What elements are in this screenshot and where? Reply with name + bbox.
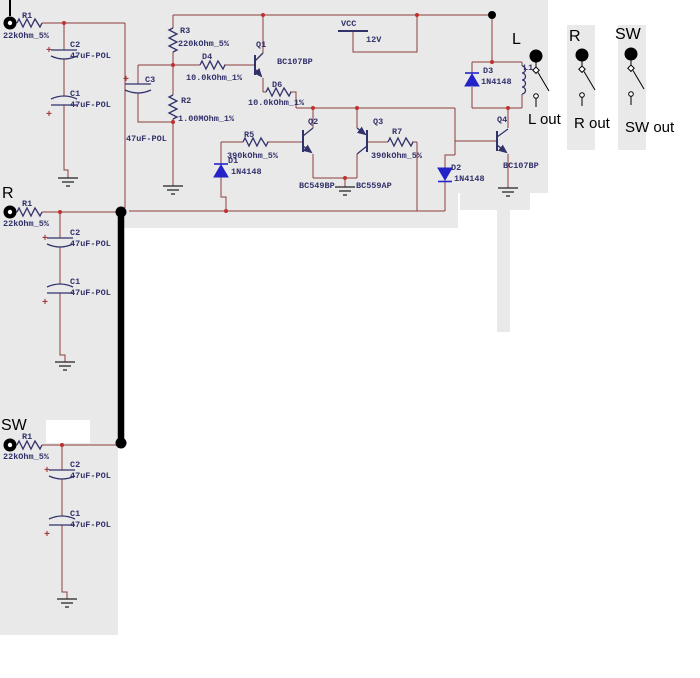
label-c1-r-ref: C1 [70, 277, 80, 287]
label-q2-val: BC549BP [299, 181, 335, 191]
label-c1-l-val: 47uF-POL [70, 100, 111, 110]
label-c1-l-ref: C1 [70, 89, 80, 99]
label-l1-ref: L1 [523, 63, 533, 73]
label-r5-ref: R5 [244, 130, 254, 140]
label-d4-ref: D4 [202, 52, 212, 62]
label-q4-ref: Q4 [497, 115, 507, 125]
plus-c1-l: + [46, 110, 52, 121]
label-c2-sw-ref: C2 [70, 460, 80, 470]
label-r3-val: 220kOhm_5% [178, 39, 230, 49]
label-d6-val: 10.0kOhm_1% [248, 98, 305, 108]
input-terminal-r[interactable] [4, 206, 17, 219]
label-c3-ref: C3 [145, 75, 155, 85]
section-label-r: R [2, 185, 14, 202]
switch-label-sw: SW [615, 26, 642, 43]
section-label-sw: SW [1, 417, 28, 434]
plus-c2-l: + [46, 46, 52, 57]
label-d6-ref: D6 [272, 80, 282, 90]
label-r7-val: 390kOhm_5% [371, 151, 423, 161]
label-r2-ref: R2 [181, 96, 191, 106]
switch-r-terminal[interactable] [576, 49, 588, 61]
plus-c1-r: + [42, 298, 48, 309]
label-r3-ref: R3 [180, 26, 190, 36]
switch-label-r: R [569, 28, 581, 45]
label-c2-r-ref: C2 [70, 228, 80, 238]
label-r1-r-val: 22kOhm_5% [3, 219, 50, 229]
canvas-background [0, 0, 646, 635]
label-d4-val: 10.0kOhm_1% [186, 73, 243, 83]
label-c1-sw-val: 47uF-POL [70, 520, 111, 530]
whiteout-patch [46, 420, 90, 443]
plus-c3: + [123, 75, 129, 86]
switch-sw-terminal[interactable] [625, 48, 637, 60]
rail-annotation-dot [488, 11, 496, 19]
label-r2-val: 1.00MOhm_1% [178, 114, 235, 124]
label-c1-sw-ref: C1 [70, 509, 80, 519]
label-vcc: VCC [341, 19, 356, 29]
label-d3-val: 1N4148 [481, 77, 512, 87]
label-d2-ref: D2 [451, 163, 461, 173]
label-r1-r-ref: R1 [22, 199, 32, 209]
plus-c2-sw: + [44, 466, 50, 477]
label-q1-ref: Q1 [256, 40, 266, 50]
label-q3-val: BC559AP [356, 181, 392, 191]
plus-c2-r: + [42, 234, 48, 245]
switch-out-label-r: R out [574, 115, 611, 132]
label-c3-val: 47uF-POL [126, 134, 167, 144]
switch-l-terminal[interactable] [530, 50, 542, 62]
label-q2-ref: Q2 [308, 117, 318, 127]
label-r1-sw-val: 22kOhm_5% [3, 452, 50, 462]
schematic-stage: R1 22kOhm_5% C2 47uF-POL C1 47uF-POL + +… [0, 0, 700, 678]
label-q3-ref: Q3 [373, 117, 383, 127]
ground-symbols [55, 178, 518, 607]
switch-out-label-l: L out [528, 111, 562, 128]
label-r7-ref: R7 [392, 127, 402, 137]
label-c1-r-val: 47uF-POL [70, 288, 111, 298]
label-c2-l-val: 47uF-POL [70, 51, 111, 61]
label-c2-l-ref: C2 [70, 40, 80, 50]
label-r1-l-val: 22kOhm_5% [3, 31, 50, 41]
label-c2-r-val: 47uF-POL [70, 239, 111, 249]
label-d3-ref: D3 [483, 66, 493, 76]
label-d2-val: 1N4148 [454, 174, 485, 184]
label-d1-ref: D1 [228, 156, 238, 166]
label-q4-val: BC107BP [503, 161, 539, 171]
input-terminal-sw[interactable] [4, 439, 17, 452]
label-c2-sw-val: 47uF-POL [70, 471, 111, 481]
switch-label-l: L [512, 31, 521, 48]
schematic-canvas: R1 22kOhm_5% C2 47uF-POL C1 47uF-POL + +… [0, 0, 700, 678]
label-12v: 12V [366, 35, 382, 45]
plus-c1-sw: + [44, 530, 50, 541]
label-q1-val: BC107BP [277, 57, 313, 67]
switch-out-label-sw: SW out [625, 119, 675, 136]
label-r1-l-ref: R1 [22, 11, 32, 21]
label-d1-val: 1N4148 [231, 167, 262, 177]
